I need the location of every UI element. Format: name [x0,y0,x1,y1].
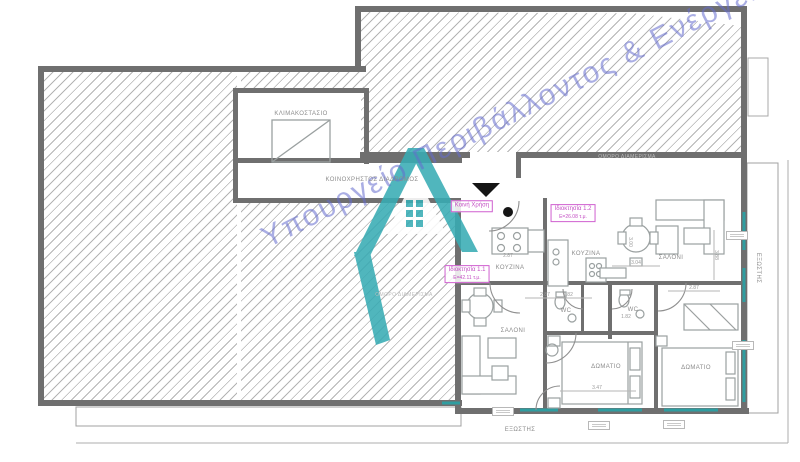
label-bedroom-1: ΔΩΜΑΤΙΟ [591,364,621,370]
label-common-corridor: ΚΟΙΝΟΧΡΗΣΤΟΣ ΔΙΑΔΡΟΜΟΣ [326,177,419,183]
label-balcony-south: ΕΞΩΣΤΗΣ [505,427,536,433]
dim-label: 1.82 [621,314,631,320]
property-area: Ε=26.08 τ.μ. [555,214,592,220]
floor-plan-canvas: Υπουργείο Περιβάλλοντος & Ενέργειας ΚΛΙΜ… [0,0,800,462]
label-bedroom-2: ΔΩΜΑΤΙΟ [681,365,711,371]
dim-label: 2.87 [540,292,550,298]
window-tag [588,421,610,430]
label-wc-1: WC [561,308,572,314]
window-tag [732,341,754,350]
property-title: Κοινή Χρήση [455,202,489,210]
label-adjacent-apartment: ΟΜΟΡΟ ΔΙΑΜΕΡΙΣΜΑ [598,154,656,160]
label-balcony-east: ΕΞΩΣΤΗΣ [755,253,761,284]
label-stairwell: ΚΛΙΜΑΚΟΣΤΑΣΙΟ [274,111,327,117]
property-title: Ιδιοκτησία 1.1 [449,267,486,275]
dim-label: 3.00 [627,237,633,247]
property-label-1-2: Ιδιοκτησία 1.2Ε=26.08 τ.μ. [551,204,596,222]
label-kitchen-1: ΚΟΥΖΙΝΑ [496,265,525,271]
labels-layer: ΚΛΙΜΑΚΟΣΤΑΣΙΟΚΟΙΝΟΧΡΗΣΤΟΣ ΔΙΑΔΡΟΜΟΣΟΜΟΡΟ… [0,0,800,462]
dim-label: 2.87 [503,253,513,259]
property-label-1-1: Ιδιοκτησία 1.1Ε=42.11 τ.μ. [445,265,490,283]
dim-label: 2.87 [689,285,699,291]
dim-label: 1.82 [563,292,573,298]
window-tag [726,231,748,240]
label-adjacent-apartment: ΟΜΟΡΟ ΔΙΑΜΕΡΙΣΜΑ [375,292,433,298]
label-living-2: ΣΑΛΟΝΙ [659,255,684,261]
label-wc-2: WC [628,307,639,313]
label-kitchen-2: ΚΟΥΖΙΝΑ [572,251,601,257]
window-tag [663,420,685,429]
dim-label: 3.04 [631,260,641,266]
dim-label: 3.47 [592,385,602,391]
property-title: Ιδιοκτησία 1.2 [555,206,592,214]
window-tag [492,407,514,416]
dim-label: 3.88 [713,250,719,260]
property-label-common: Κοινή Χρήση [451,200,493,212]
label-living-1: ΣΑΛΟΝΙ [501,328,526,334]
property-area: Ε=42.11 τ.μ. [449,275,486,281]
